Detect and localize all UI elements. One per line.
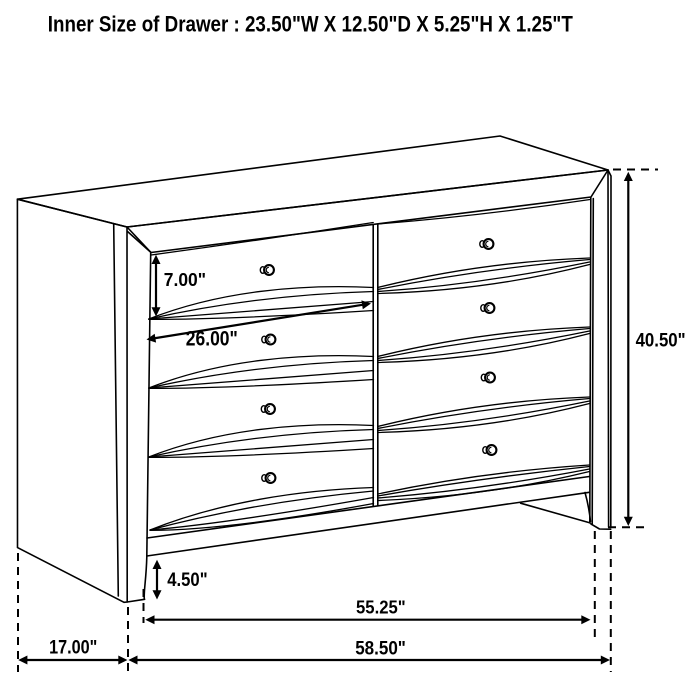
- svg-text:Inner Size of Drawer : 23.50"W: Inner Size of Drawer : 23.50"W X 12.50"D…: [48, 11, 574, 36]
- svg-text:40.50": 40.50": [636, 331, 686, 352]
- svg-text:17.00": 17.00": [49, 636, 97, 658]
- svg-text:4.50": 4.50": [167, 569, 207, 591]
- svg-text:58.50": 58.50": [355, 639, 406, 660]
- svg-text:26.00": 26.00": [186, 328, 238, 351]
- svg-text:55.25": 55.25": [356, 596, 406, 617]
- svg-text:7.00": 7.00": [164, 269, 206, 290]
